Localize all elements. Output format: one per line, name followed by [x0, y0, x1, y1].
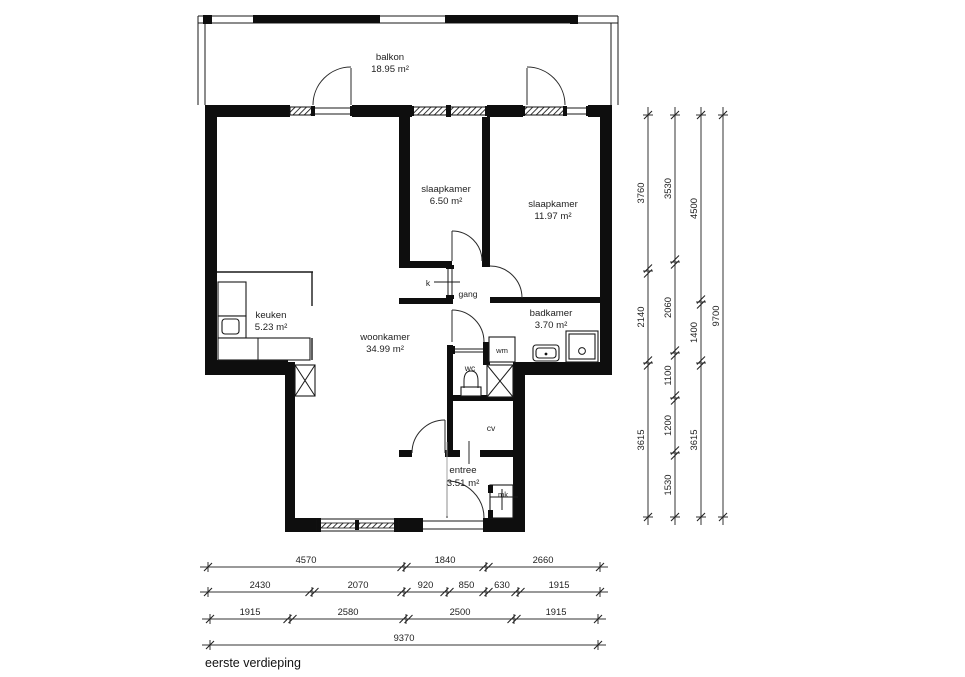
balcony-windows [290, 105, 590, 117]
room-label-entree: entree [449, 465, 476, 476]
room-area-entree: 3.51 m² [447, 478, 480, 489]
dimension-label: 630 [494, 579, 510, 590]
toilet [461, 371, 481, 396]
kitchen-counter [218, 282, 310, 360]
dimension-label: 1530 [662, 475, 673, 496]
room-area-woonkamer: 34.99 m² [366, 344, 405, 355]
room-label-keuken: keuken [256, 310, 287, 321]
balcony-railing-segment [445, 15, 573, 23]
room-area-balkon: 18.95 m² [371, 64, 410, 75]
balcony-outline [198, 15, 618, 105]
dimension-label: 2580 [338, 606, 359, 617]
kitchen-sink [222, 319, 239, 334]
dimension-label: 2140 [635, 307, 646, 328]
balcony-railing-segment [253, 15, 380, 23]
room-label-balkon: balkon [376, 52, 404, 63]
interior-walls [399, 117, 612, 457]
label-kast: k [426, 278, 431, 288]
dimension-label: 2430 [250, 579, 271, 590]
dimension-label: 1915 [549, 579, 570, 590]
dimension-label: 1400 [688, 322, 699, 343]
dimension-label: 4500 [688, 198, 699, 219]
room-label-slaapkamer-1: slaapkamer [421, 184, 471, 195]
bottom-window [317, 518, 398, 532]
dimension-label: 2060 [662, 297, 673, 318]
room-label-gang: gang [458, 289, 477, 299]
dimension-label: 1200 [662, 415, 673, 436]
dimension-label: 3615 [688, 430, 699, 451]
dimension-label: 2660 [533, 554, 554, 565]
dimension-label: 920 [418, 579, 434, 590]
room-label-slaapkamer-2: slaapkamer [528, 199, 578, 210]
label-cv: cv [487, 423, 496, 433]
room-area-slaapkamer-2: 11.97 m² [534, 211, 572, 222]
dimension-label: 2070 [348, 579, 369, 590]
dimension-label: 2500 [450, 606, 471, 617]
dimension-label: 1915 [240, 606, 261, 617]
room-label-woonkamer: woonkamer [359, 332, 410, 343]
dimension-label: 1840 [435, 554, 456, 565]
room-label-badkamer: badkamer [530, 308, 573, 319]
dimension-label: 3615 [635, 430, 646, 451]
dimension-label: 3530 [662, 178, 673, 199]
room-area-keuken: 5.23 m² [255, 322, 288, 333]
room-area-slaapkamer-1: 6.50 m² [430, 196, 463, 207]
dimension-label: 3760 [635, 183, 646, 204]
floorplan-drawing: balkon 18.95 m² slaapkamer 6.50 m² slaap… [0, 0, 965, 677]
door-arcs [313, 67, 565, 516]
dimension-label: 9700 [710, 306, 721, 327]
room-label-wc: wc [464, 363, 476, 373]
label-meterkast: mk [498, 490, 508, 499]
dimension-label: 9370 [394, 632, 415, 643]
floorplan-page: balkon 18.95 m² slaapkamer 6.50 m² slaap… [0, 0, 965, 677]
dimension-label: 1100 [662, 365, 673, 385]
dimension-label: 1915 [546, 606, 567, 617]
dimension-label: 850 [459, 579, 475, 590]
floor-title: eerste verdieping [205, 656, 301, 670]
dimension-label: 4570 [296, 554, 317, 565]
label-wasmachine: wm [495, 346, 508, 355]
room-area-badkamer: 3.70 m² [535, 320, 568, 331]
